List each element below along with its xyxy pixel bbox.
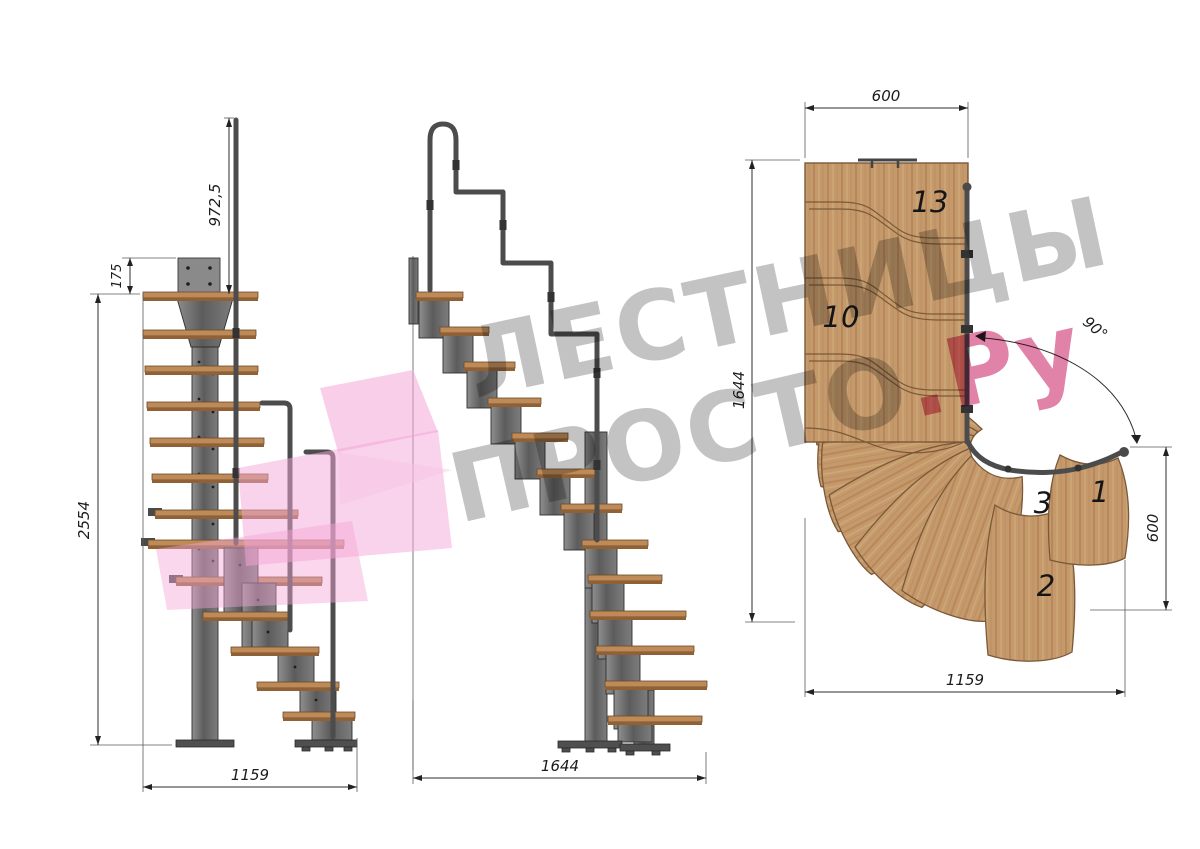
bolt <box>186 282 190 286</box>
angle-arc <box>984 338 1136 438</box>
dim-plan-bottom-width: 1159 <box>946 671 984 689</box>
tread <box>145 366 258 375</box>
bolt <box>208 266 212 270</box>
dim-landing-offset: 175 <box>110 264 125 289</box>
dim-plan-top-width: 600 <box>872 87 901 105</box>
column-base-plate <box>176 740 234 747</box>
column-base-plate <box>620 744 670 751</box>
front-step <box>608 716 702 742</box>
tread <box>283 712 355 721</box>
tread <box>150 438 264 447</box>
bolt <box>208 282 212 286</box>
tread <box>147 402 260 411</box>
dim-plan-right-depth: 600 <box>1144 514 1162 543</box>
dim-total-height: 2554 <box>75 501 93 539</box>
bolt <box>186 266 190 270</box>
dim-side-width: 1159 <box>231 766 269 784</box>
dim-turn-angle: 90° <box>1079 313 1111 344</box>
step-number-10: 10 <box>823 300 860 334</box>
column-base-plate <box>558 741 622 748</box>
dim-railing-height: 972,5 <box>206 184 224 227</box>
drawing-canvas: 13 10 3 1 2 1159 2554 175 972,5 <box>0 0 1200 849</box>
side-view <box>141 120 357 751</box>
front-view <box>409 124 707 770</box>
rail-end-cap <box>963 183 972 192</box>
step-number-13: 13 <box>912 185 949 219</box>
tread <box>203 612 291 621</box>
wall-bracket <box>409 258 418 324</box>
rail-end-cap <box>1119 447 1129 457</box>
dim-plan-left-depth: 1644 <box>730 371 748 409</box>
staircase-technical-drawing: 13 10 3 1 2 1159 2554 175 972,5 <box>0 0 1200 849</box>
handrail-loop <box>430 124 456 290</box>
top-mount-plate <box>178 258 220 295</box>
logo-arrow-tail <box>156 521 368 610</box>
column-funnel <box>176 295 234 347</box>
step-number-2: 2 <box>1037 569 1055 603</box>
tread <box>257 682 339 691</box>
step-number-3: 3 <box>1034 486 1052 520</box>
step-number-1: 1 <box>1091 475 1109 509</box>
tread <box>231 647 319 656</box>
tread <box>143 292 258 301</box>
dim-front-width: 1644 <box>541 757 579 775</box>
flight-base-plate <box>295 740 357 747</box>
plan-view: 13 10 3 1 2 <box>805 160 1129 661</box>
